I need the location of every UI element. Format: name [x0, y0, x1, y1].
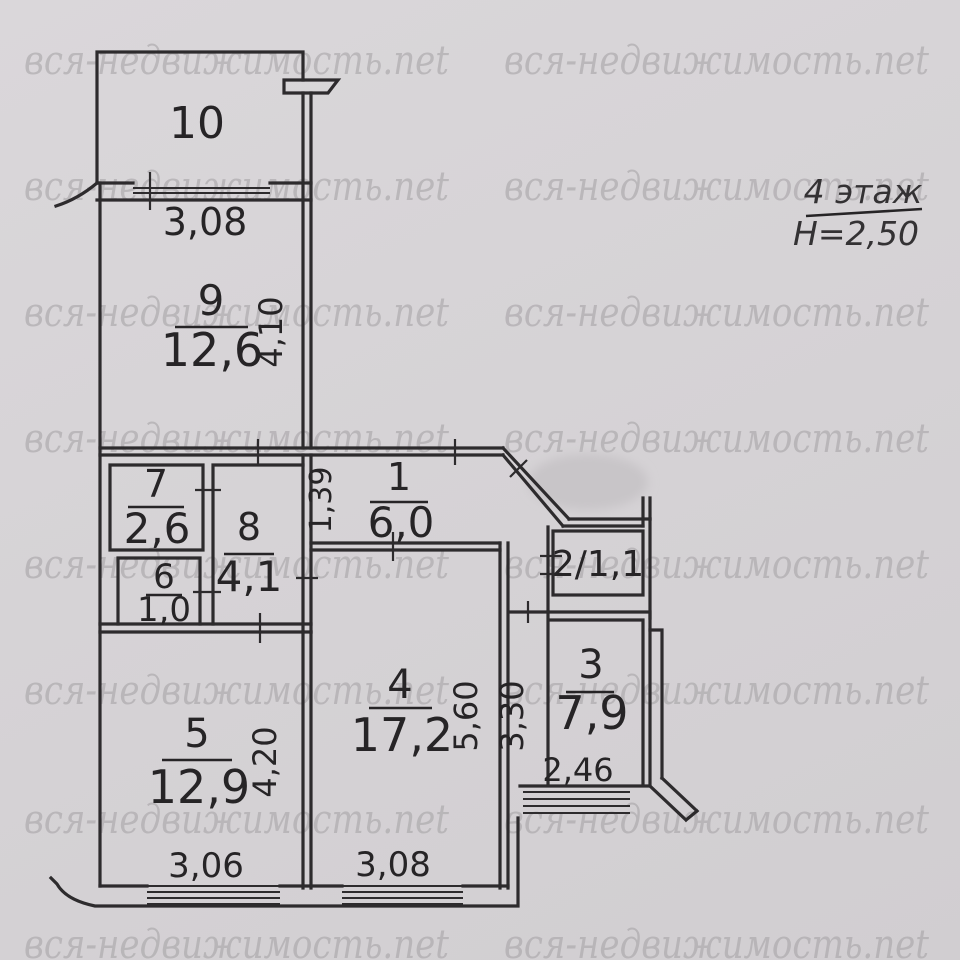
room-4-area: 17,2 [351, 708, 453, 762]
room-9-area: 12,6 [161, 323, 263, 377]
dim-hallway-width: 1,39 [304, 467, 339, 534]
room-10-number: 10 [169, 98, 225, 149]
room-1-area: 6,0 [368, 498, 435, 547]
dim-top-window: 3,08 [163, 200, 248, 244]
dim-room4-depth: 5,60 [447, 680, 485, 751]
room-5-area: 12,9 [148, 760, 250, 814]
smudge-blob [528, 454, 648, 510]
watermark-text: вся-недвижимость.net [24, 922, 450, 960]
dim-room3-depth: 3,30 [493, 680, 531, 751]
wall-segment-room5-top [100, 624, 311, 632]
room-4-number: 4 [387, 662, 412, 708]
wall-segment-room9-right [303, 93, 311, 448]
dim-room5-depth: 4,20 [246, 726, 284, 797]
photo-smudge [528, 454, 648, 510]
dim-room3-window: 2,46 [542, 751, 613, 789]
watermark-text: вся-недвижимость.net [504, 290, 930, 336]
room-8-number: 8 [237, 505, 261, 549]
floor-title: 4 этаж H=2,50 [793, 172, 923, 253]
room-5-number: 5 [184, 711, 209, 757]
dim-room4-window: 3,08 [355, 845, 431, 885]
floor-plan-canvas: вся-недвижимость.net вся-недвижимость.ne… [0, 0, 960, 960]
floor-number-label: 4 этаж [804, 172, 923, 211]
window-room5 [147, 886, 280, 904]
room-8-area: 4,1 [216, 552, 283, 601]
room-3-number: 3 [578, 642, 603, 688]
scanned-floor-plan: вся-недвижимость.net вся-недвижимость.ne… [0, 0, 960, 960]
room-9-number: 9 [198, 276, 225, 325]
wall-segment-after-diagonal [563, 519, 650, 526]
watermark-text: вся-недвижимость.net [504, 797, 930, 843]
room-7-area: 2,6 [124, 504, 191, 553]
ceiling-height-label: H=2,50 [793, 214, 919, 253]
watermark-text: вся-недвижимость.net [24, 38, 450, 84]
room-1-number: 1 [387, 455, 411, 499]
window-room4 [342, 886, 463, 904]
watermark-text: вся-недвижимость.net [504, 38, 930, 84]
watermark-text: вся-недвижимость.net [504, 922, 930, 960]
room-2-label: 2/1,1 [552, 544, 644, 585]
room-3-area: 7,9 [555, 686, 628, 740]
room-7-number: 7 [144, 462, 168, 506]
dim-room5-window: 3,06 [168, 846, 244, 886]
room-6-area: 1,0 [137, 590, 191, 630]
dim-room9-depth: 4,10 [252, 296, 290, 367]
watermark-text: вся-недвижимость.net [504, 416, 930, 462]
